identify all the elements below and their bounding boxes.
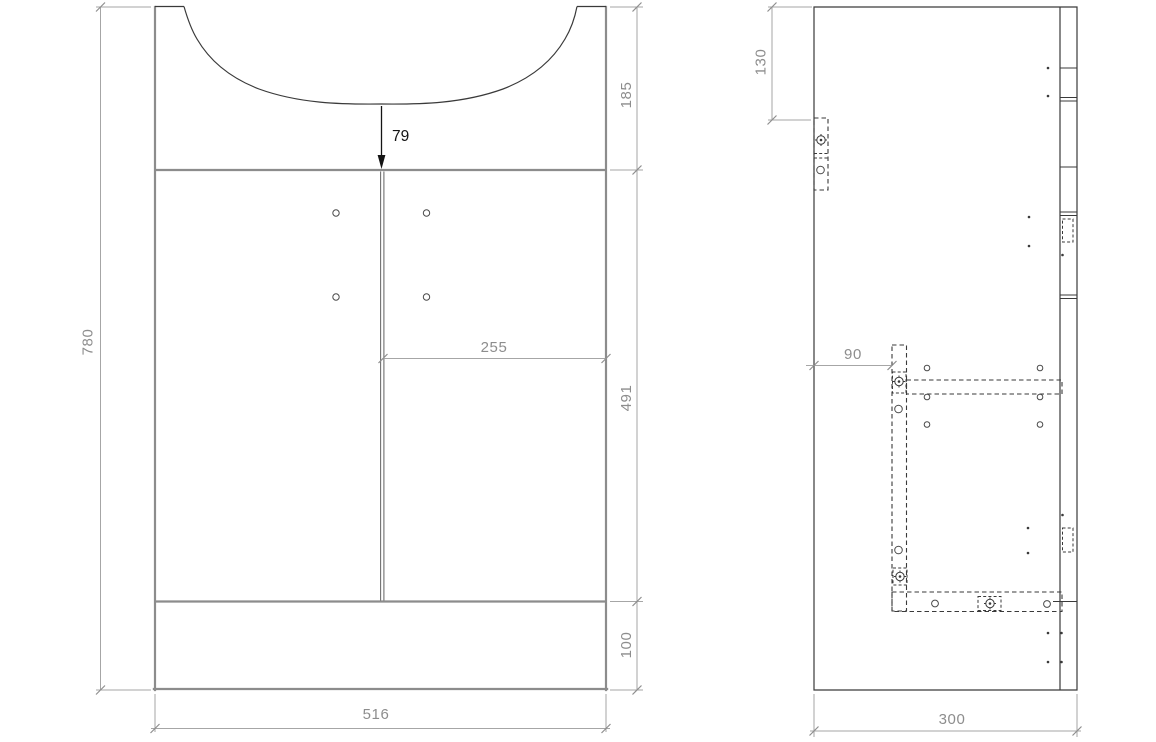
front-view: 780 185 491 100 255 516 79 xyxy=(80,3,644,734)
hinge-plate xyxy=(814,118,828,190)
hinge-cup-outline xyxy=(1063,528,1074,552)
fixing-dot xyxy=(1047,632,1050,635)
hinge-hole-icon xyxy=(333,210,339,216)
dim-runner-offset: 90 xyxy=(806,346,897,370)
vanity-unit-drawing: 780 185 491 100 255 516 79 xyxy=(0,0,1156,742)
dim-label-total-depth: 300 xyxy=(939,711,966,728)
hinge-hole-icon xyxy=(333,294,339,300)
shelf-hidden xyxy=(907,365,1063,427)
cam-fitting-icon xyxy=(894,571,906,583)
dim-right-column: 185 491 100 xyxy=(610,3,643,695)
fixing-dot xyxy=(1028,245,1031,248)
cam-fitting-icon xyxy=(984,598,996,610)
dowel-hole-icon xyxy=(895,546,903,554)
side-view: 130 90 300 xyxy=(753,3,1082,738)
hinge-plate-split xyxy=(814,154,828,159)
cam-fitting-icon xyxy=(815,134,827,146)
dim-door-width: 255 xyxy=(379,339,611,363)
dimension-extension-line xyxy=(768,7,812,120)
dowel-hole-icon xyxy=(932,600,939,607)
basin-depth-annotation: 79 xyxy=(378,106,410,169)
fixing-dot xyxy=(1047,661,1050,664)
shelf-outline xyxy=(907,380,1063,394)
runner-outline xyxy=(892,345,907,611)
shelf-pin-hole-icon xyxy=(1037,365,1043,371)
dowel-hole-icon xyxy=(895,405,903,413)
dim-total-height: 780 xyxy=(80,3,152,695)
dim-label-door-width: 255 xyxy=(481,339,508,356)
fixing-dot xyxy=(1027,527,1030,530)
dim-label-total-width: 516 xyxy=(363,706,390,723)
fixing-dot xyxy=(1061,254,1064,257)
technical-drawing-page: 780 185 491 100 255 516 79 xyxy=(0,0,1156,742)
door-divider xyxy=(381,172,384,601)
dowel-hole-icon xyxy=(817,166,825,174)
fixing-dot xyxy=(1047,67,1050,70)
fixing-dot xyxy=(1060,632,1063,635)
basin-curve xyxy=(155,7,606,105)
fixing-dot xyxy=(1028,216,1031,219)
cam-fitting-icon xyxy=(893,376,905,388)
dimension-extension-line xyxy=(610,7,643,690)
hinge-cup-outline xyxy=(1063,219,1074,242)
dimension-extension-line xyxy=(96,7,151,690)
runner-strip xyxy=(892,345,907,611)
dim-label-basin-depth: 79 xyxy=(392,128,409,145)
shelf-pin-hole-icon xyxy=(924,394,930,400)
dim-total-depth: 300 xyxy=(810,694,1082,737)
hinge-hole-icon xyxy=(423,294,429,300)
shelf-pin-hole-icon xyxy=(924,365,930,371)
fixing-dot xyxy=(1027,552,1030,555)
shelf-pin-hole-icon xyxy=(1037,394,1043,400)
dim-label-plinth: 100 xyxy=(618,632,635,659)
dim-total-width: 516 xyxy=(151,694,611,733)
dim-label-total-height: 780 xyxy=(80,329,97,356)
fixing-dot xyxy=(1060,661,1063,664)
shelf-pin-hole-icon xyxy=(924,422,930,428)
shelf-pin-hole-icon xyxy=(1037,422,1043,428)
dowel-hole-icon xyxy=(1044,601,1051,608)
bottom-rail-outline xyxy=(892,592,1062,612)
hinge-hole-icon xyxy=(423,210,429,216)
door-edge-fittings xyxy=(1053,68,1077,602)
dim-label-hinge-offset: 130 xyxy=(753,49,770,76)
dim-top-hinge-offset: 130 xyxy=(753,3,813,125)
dim-label-runner-offset: 90 xyxy=(844,346,862,363)
bottom-rail-hidden xyxy=(892,592,1062,612)
down-arrow-icon xyxy=(378,155,386,169)
fixing-dot xyxy=(1061,514,1064,517)
fixing-dots xyxy=(1027,67,1064,664)
dim-label-door-section: 491 xyxy=(618,385,635,412)
fixing-dot xyxy=(1047,95,1050,98)
dim-label-top-section: 185 xyxy=(618,82,635,109)
